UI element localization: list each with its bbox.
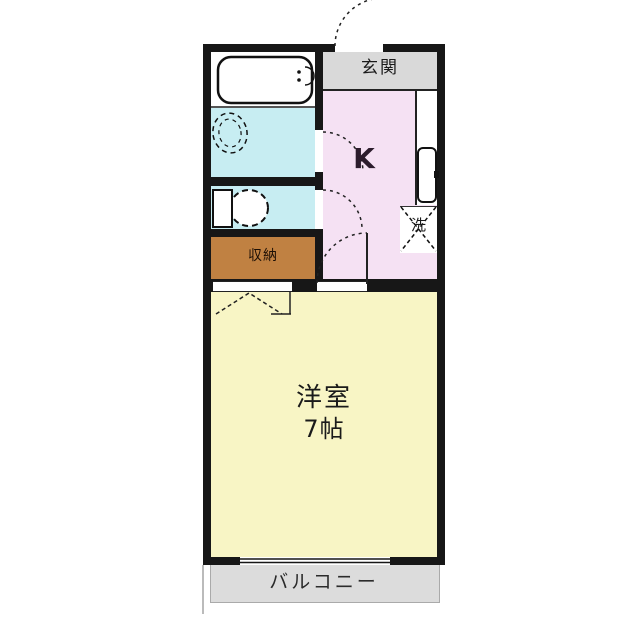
kitchen-label: K — [338, 144, 390, 175]
wall-bath-kitchen-upper — [315, 44, 323, 130]
balcony-label: バルコニー — [210, 572, 438, 593]
wall-right — [437, 44, 445, 565]
wall-left — [203, 44, 211, 565]
balcony-side-rail — [202, 565, 204, 614]
wall-bottom-left — [203, 557, 240, 565]
kitchen-room-door-opening — [317, 281, 367, 292]
storage-label: 収納 — [211, 249, 315, 264]
entrance-label: 玄関 — [323, 59, 437, 78]
bath-washroom-divider — [211, 106, 315, 108]
room-name-label: 洋室 — [211, 384, 437, 413]
wall-toilet-storage — [203, 229, 323, 237]
wall-washroom-toilet — [203, 177, 323, 186]
bathroom-floor — [211, 52, 315, 107]
washroom-floor — [211, 108, 315, 177]
closet-door-opening — [213, 281, 292, 292]
wall-top-right — [383, 44, 445, 52]
entrance-door-arc — [335, 0, 383, 46]
floorplan-canvas: 玄関 K 洗 収納 洋室 7帖 バルコニー — [0, 0, 640, 640]
washer-label: 洗 — [400, 217, 437, 234]
toilet-floor — [211, 186, 315, 229]
wall-bottom-right — [390, 557, 445, 565]
balcony-window — [240, 559, 390, 563]
kitchen-counter — [415, 91, 439, 205]
room-size-label: 7帖 — [211, 416, 437, 442]
